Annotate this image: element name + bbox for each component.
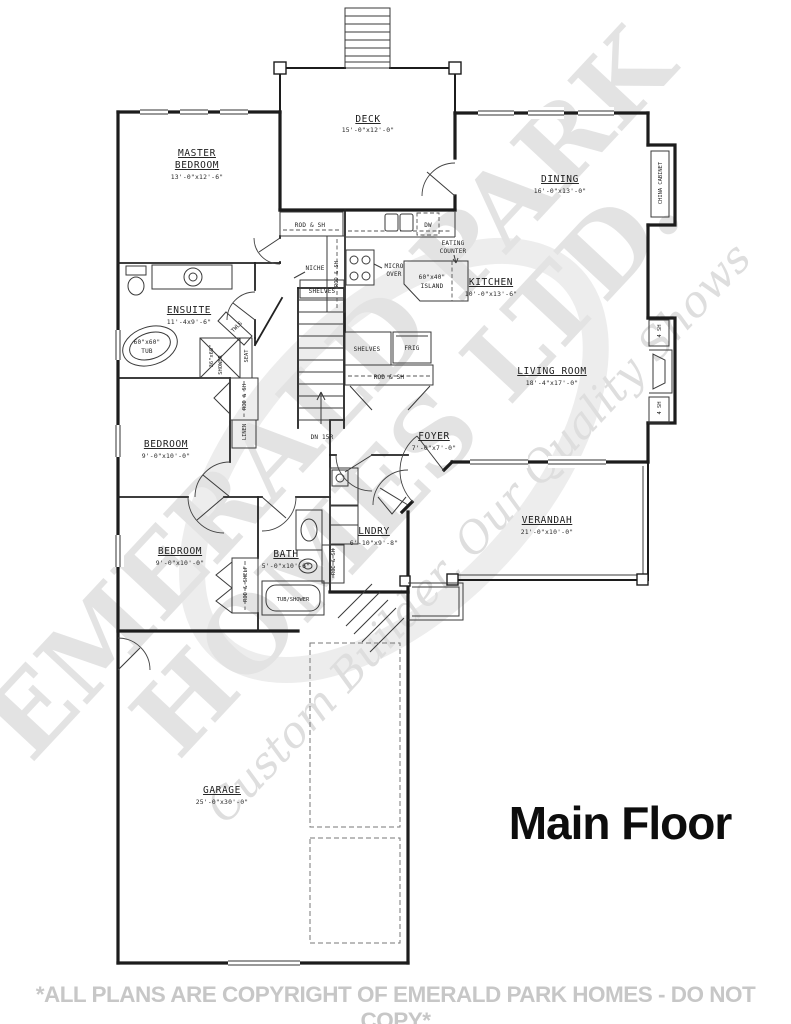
label-seat: SEAT	[244, 349, 250, 363]
room-dims-living: 18'-4"x17'-0"	[526, 379, 579, 387]
room-dims-verandah: 21'-0"x10'-0"	[521, 528, 574, 536]
label-island-2: ISLAND	[421, 283, 444, 290]
label-twls: TWLS	[230, 321, 243, 334]
label-micro-2: OVER	[386, 271, 401, 278]
page-title: Main Floor	[470, 796, 770, 850]
label-4sh-bottom: 4 SH	[657, 402, 663, 415]
floor-plan-canvas: EMERALD PARK HOMES LTD. Custom Builder, …	[0, 0, 791, 1024]
room-dims-garage: 25'-0"x30'-0"	[196, 798, 249, 806]
room-label-master-2: BEDROOM	[175, 160, 219, 171]
room-label-bath: BATH	[273, 549, 298, 560]
floor-plan-page: EMERALD PARK HOMES LTD. Custom Builder, …	[0, 0, 791, 1024]
room-label-master-1: MASTER	[178, 148, 216, 159]
room-label-verandah: VERANDAH	[522, 515, 573, 526]
deck-stairs	[345, 8, 390, 68]
label-eating-2: COUNTER	[440, 248, 467, 255]
label-china-cabinet: CHINA CABINET	[658, 161, 664, 204]
label-frig: FRIG	[404, 345, 419, 352]
label-shelves-pantry: SHELVES	[354, 346, 381, 353]
room-label-dining: DINING	[541, 174, 579, 185]
label-shower-2: SHOWER	[218, 355, 224, 375]
copyright-footer: *ALL PLANS ARE COPYRIGHT OF EMERALD PARK…	[0, 982, 791, 1024]
room-label-laundry: LNDRY	[358, 526, 390, 537]
room-label-deck: DECK	[355, 114, 380, 125]
room-label-ensuite: ENSUITE	[167, 305, 211, 316]
label-shower-1: 36"x60"	[209, 345, 215, 368]
room-dims-kitchen: 10'-0"x13'-6"	[465, 290, 518, 298]
room-dims-deck: 15'-0"x12'-0"	[342, 126, 395, 134]
room-dims-ensuite: 11'-4x9'-6"	[167, 318, 212, 326]
label-rod-sh-foyer: ROD & SH	[374, 374, 405, 381]
deck-structure	[274, 8, 461, 210]
room-dims-bath: 5'-0"x10'-6"	[262, 562, 311, 570]
room-dims-foyer: 7'-0"x7'-0"	[412, 444, 457, 452]
label-micro-1: MICRO	[384, 263, 403, 270]
label-tub-2: TUB	[141, 348, 153, 355]
label-rod-sh-master-vert: ROD & SH	[334, 261, 340, 287]
room-label-living: LIVING ROOM	[517, 366, 587, 377]
room-dims-bedroom-low: 9'-0"x10'-0"	[156, 559, 205, 567]
label-rod-sh-master: ROD & SH	[295, 222, 326, 229]
label-shelves-niche: SHELVES	[309, 288, 336, 295]
room-dims-laundry: 6'-10"x9'-8"	[350, 539, 399, 547]
room-dims-master: 13'-0"x12'-6"	[171, 173, 224, 181]
label-dn-15r: DN 15R	[311, 434, 334, 441]
label-eating-1: EATING	[442, 240, 465, 247]
label-dw: DW	[424, 222, 432, 229]
label-tub-shower: TUB/SHOWER	[277, 597, 310, 603]
room-dims-bedroom-mid: 9'-0"x10'-0"	[142, 452, 191, 460]
room-label-bedroom-mid: BEDROOM	[144, 439, 188, 450]
label-rod-sh-laundry: ROD & SH	[331, 549, 337, 575]
label-tub-1: 60"x60"	[134, 339, 161, 346]
room-label-kitchen: KITCHEN	[469, 277, 513, 288]
label-rod-shelf-bedroom-low: ROD & SHELF	[243, 566, 249, 602]
label-niche: NICHE	[305, 265, 324, 272]
label-4sh-top: 4 SH	[657, 325, 663, 338]
room-label-foyer: FOYER	[418, 431, 450, 442]
room-label-garage: GARAGE	[203, 785, 241, 796]
label-rod-sh-bedroom-mid: ROD & SH	[242, 384, 248, 410]
label-island-1: 60"x40"	[419, 274, 446, 281]
room-dims-dining: 16'-0"x13'-0"	[534, 187, 587, 195]
label-linen: LINEN	[242, 424, 248, 440]
room-label-bedroom-low: BEDROOM	[158, 546, 202, 557]
